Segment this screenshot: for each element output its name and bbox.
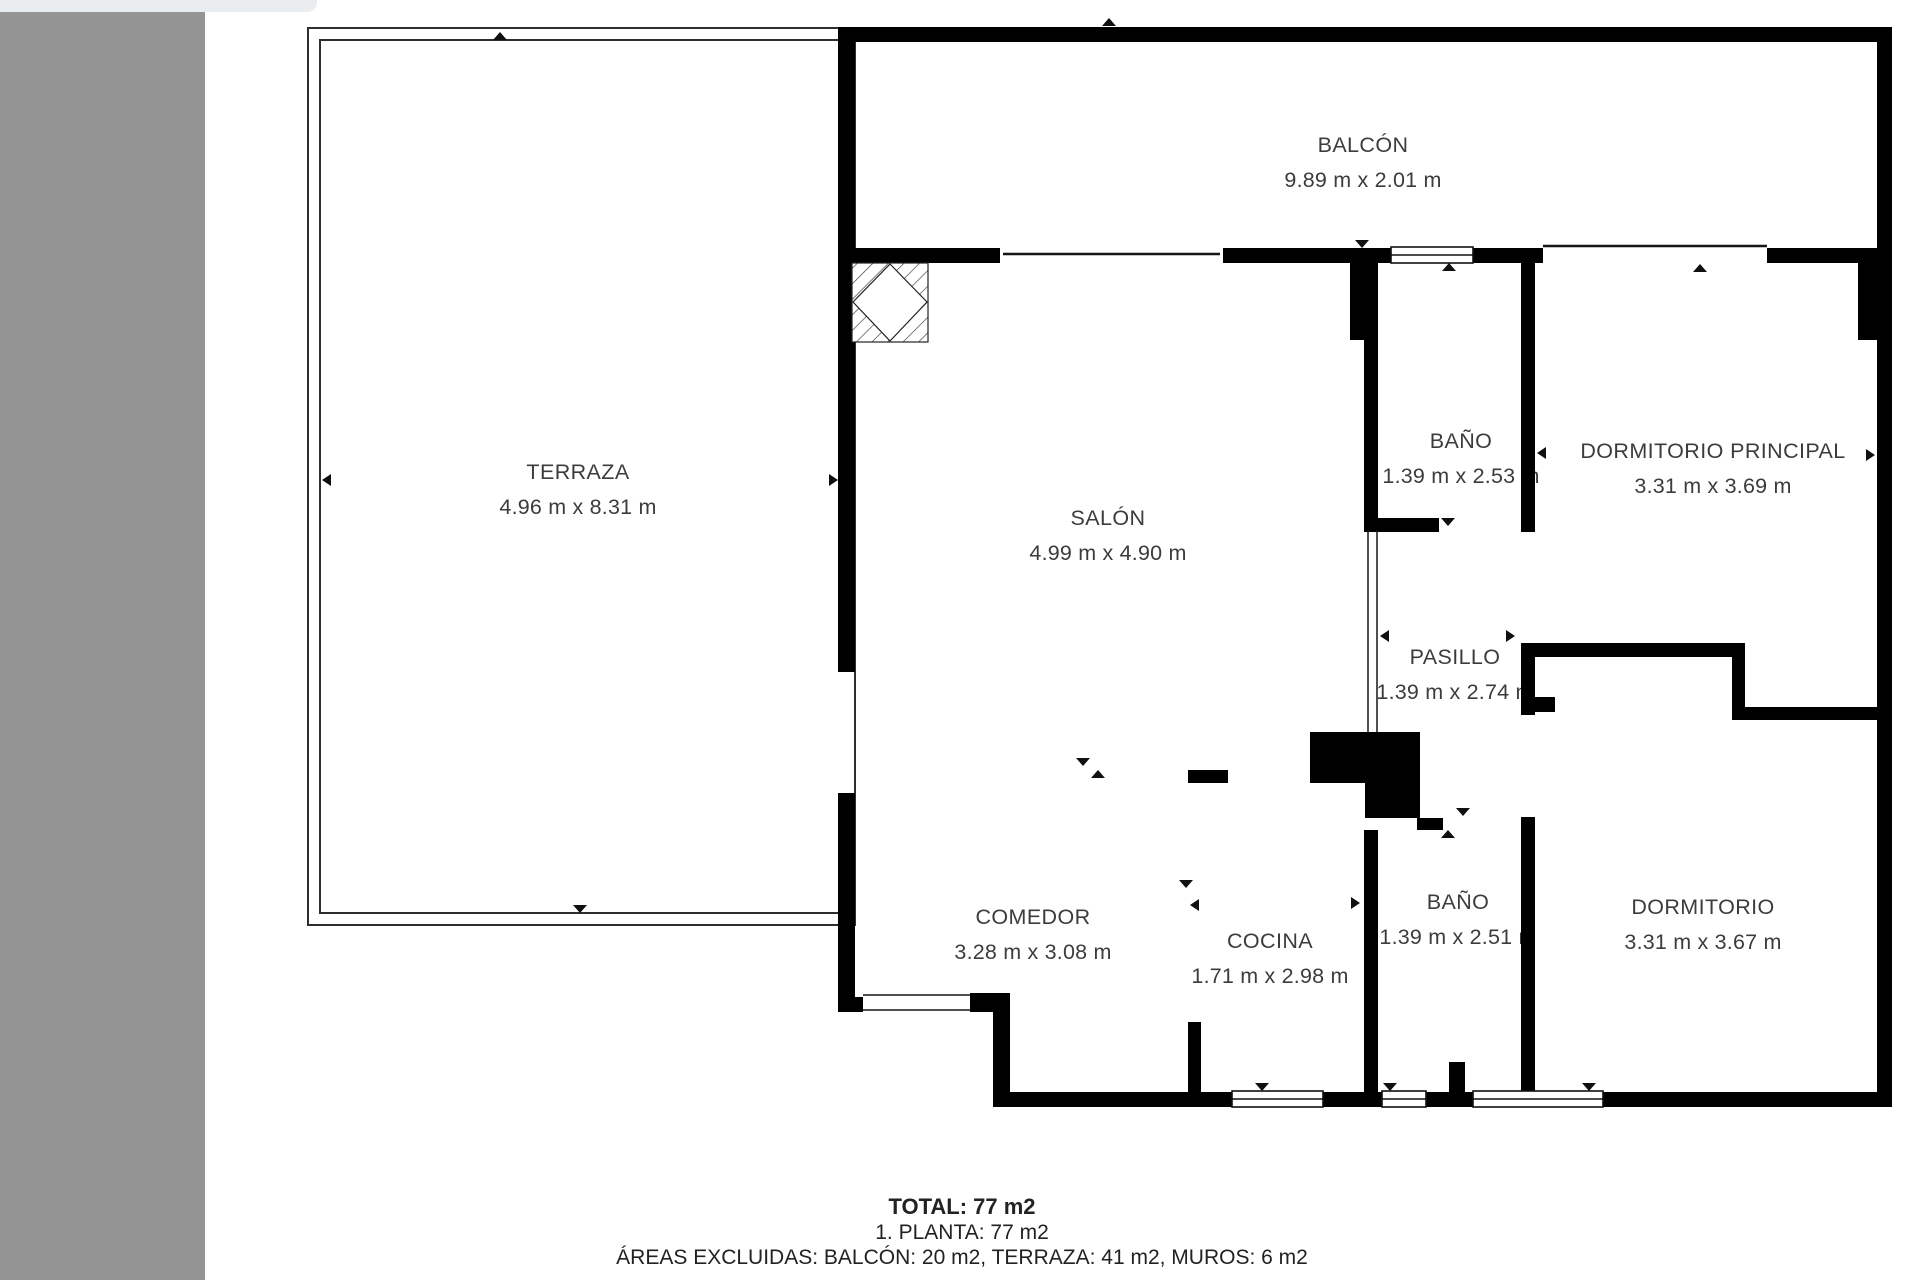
room-dims: 1.39 m x 2.51 m (1379, 920, 1536, 955)
room-name: SALÓN (1029, 501, 1186, 536)
room-dims: 4.96 m x 8.31 m (499, 490, 656, 525)
room-label-cocina: COCINA 1.71 m x 2.98 m (1191, 924, 1348, 994)
room-name: COCINA (1191, 924, 1348, 959)
room-label-dormitorio-principal: DORMITORIO PRINCIPAL 3.31 m x 3.69 m (1580, 434, 1845, 504)
room-name: COMEDOR (954, 900, 1111, 935)
room-label-salon: SALÓN 4.99 m x 4.90 m (1029, 501, 1186, 571)
room-dims: 1.39 m x 2.74 m (1376, 675, 1533, 710)
room-label-comedor: COMEDOR 3.28 m x 3.08 m (954, 900, 1111, 970)
room-dims: 4.99 m x 4.90 m (1029, 536, 1186, 571)
room-dims: 3.28 m x 3.08 m (954, 935, 1111, 970)
room-label-terraza: TERRAZA 4.96 m x 8.31 m (499, 455, 656, 525)
room-label-dormitorio: DORMITORIO 3.31 m x 3.67 m (1624, 890, 1781, 960)
room-name: BAÑO (1379, 885, 1536, 920)
room-name: BALCÓN (1284, 128, 1441, 163)
room-label-pasillo: PASILLO 1.39 m x 2.74 m (1376, 640, 1533, 710)
summary-planta: 1. PLANTA: 77 m2 (616, 1220, 1308, 1245)
room-name: BAÑO (1382, 424, 1539, 459)
room-label-bano-superior: BAÑO 1.39 m x 2.53 m (1382, 424, 1539, 494)
summary-excluded: ÁREAS EXCLUIDAS: BALCÓN: 20 m2, TERRAZA:… (616, 1245, 1308, 1270)
room-name: PASILLO (1376, 640, 1533, 675)
room-label-bano-inferior: BAÑO 1.39 m x 2.51 m (1379, 885, 1536, 955)
room-dims: 9.89 m x 2.01 m (1284, 163, 1441, 198)
room-name: DORMITORIO (1624, 890, 1781, 925)
floorplan-screen: BALCÓN 9.89 m x 2.01 m TERRAZA 4.96 m x … (0, 0, 1920, 1280)
room-dims: 3.31 m x 3.69 m (1580, 469, 1845, 504)
area-summary: TOTAL: 77 m2 1. PLANTA: 77 m2 ÁREAS EXCL… (616, 1194, 1308, 1270)
browser-tab (0, 0, 317, 12)
left-sidebar (0, 6, 205, 1280)
summary-total: TOTAL: 77 m2 (616, 1194, 1308, 1220)
room-dims: 1.39 m x 2.53 m (1382, 459, 1539, 494)
room-name: DORMITORIO PRINCIPAL (1580, 434, 1845, 469)
room-dims: 1.71 m x 2.98 m (1191, 959, 1348, 994)
room-labels: BALCÓN 9.89 m x 2.01 m TERRAZA 4.96 m x … (0, 0, 1920, 1280)
room-name: TERRAZA (499, 455, 656, 490)
room-label-balcon: BALCÓN 9.89 m x 2.01 m (1284, 128, 1441, 198)
room-dims: 3.31 m x 3.67 m (1624, 925, 1781, 960)
